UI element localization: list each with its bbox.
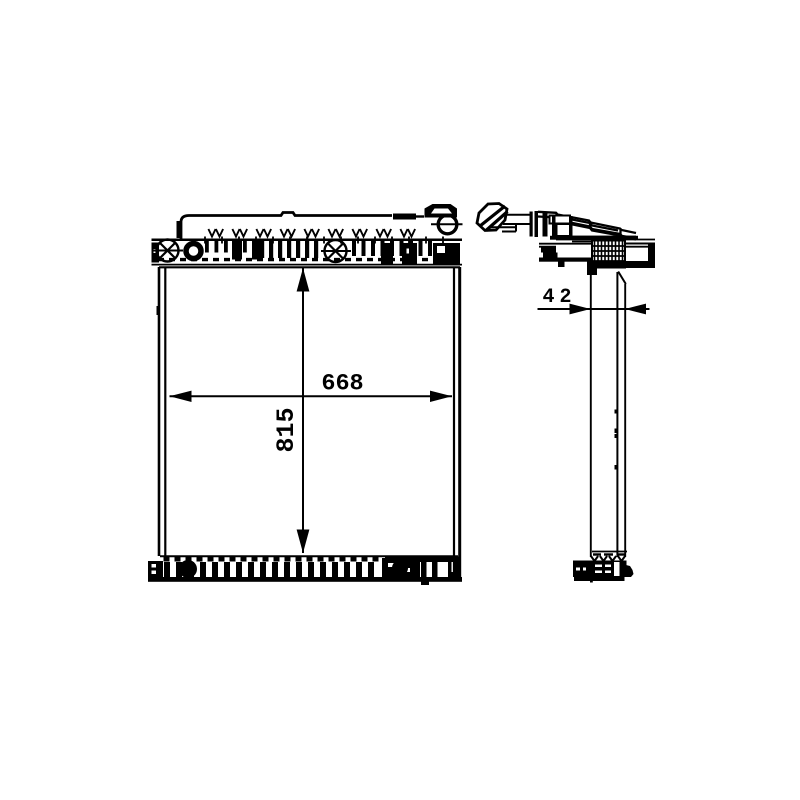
- svg-text:668: 668: [321, 371, 363, 398]
- svg-text:42: 42: [542, 286, 576, 309]
- svg-text:815: 815: [272, 407, 301, 452]
